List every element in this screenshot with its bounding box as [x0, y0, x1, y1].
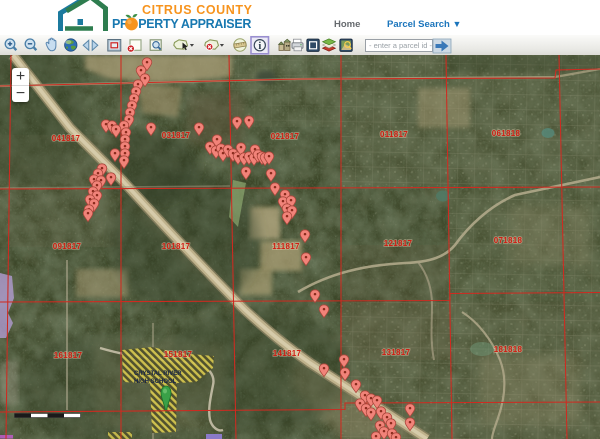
svg-text:061818: 061818	[492, 129, 521, 138]
svg-text:151817: 151817	[164, 350, 193, 359]
svg-text:121817: 121817	[384, 239, 413, 248]
svg-text:HIGH SCHOOL: HIGH SCHOOL	[134, 379, 177, 385]
svg-text:CRYSTAL RIVER: CRYSTAL RIVER	[134, 371, 182, 377]
svg-text:091817: 091817	[53, 242, 82, 251]
svg-text:181818: 181818	[494, 345, 523, 354]
svg-text:101817: 101817	[162, 242, 191, 251]
svg-text:141817: 141817	[273, 349, 302, 358]
svg-text:041817: 041817	[52, 134, 81, 143]
svg-text:161817: 161817	[54, 351, 83, 360]
svg-text:111817: 111817	[272, 242, 300, 251]
svg-text:031817: 031817	[162, 131, 191, 140]
svg-text:i: i	[258, 41, 261, 52]
svg-text:021817: 021817	[271, 132, 300, 141]
svg-text:011817: 011817	[380, 130, 408, 139]
svg-text:131817: 131817	[382, 348, 411, 357]
svg-text:071818: 071818	[494, 236, 523, 245]
